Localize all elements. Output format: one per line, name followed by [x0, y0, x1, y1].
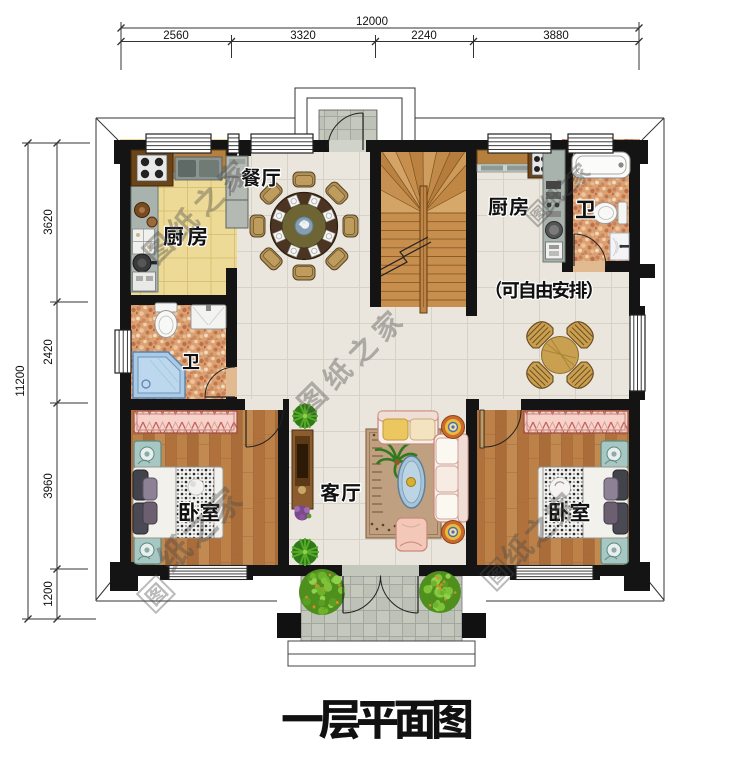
svg-text:2420: 2420 — [43, 339, 55, 365]
svg-text:12000: 12000 — [356, 16, 388, 28]
svg-text:11200: 11200 — [15, 365, 27, 396]
svg-text:3320: 3320 — [290, 30, 316, 42]
svg-text:1200: 1200 — [43, 581, 55, 607]
svg-text:3880: 3880 — [543, 30, 569, 42]
svg-text:3620: 3620 — [43, 209, 55, 235]
svg-text:2240: 2240 — [411, 30, 437, 42]
svg-text:3960: 3960 — [43, 473, 55, 499]
svg-text:2560: 2560 — [163, 30, 189, 42]
